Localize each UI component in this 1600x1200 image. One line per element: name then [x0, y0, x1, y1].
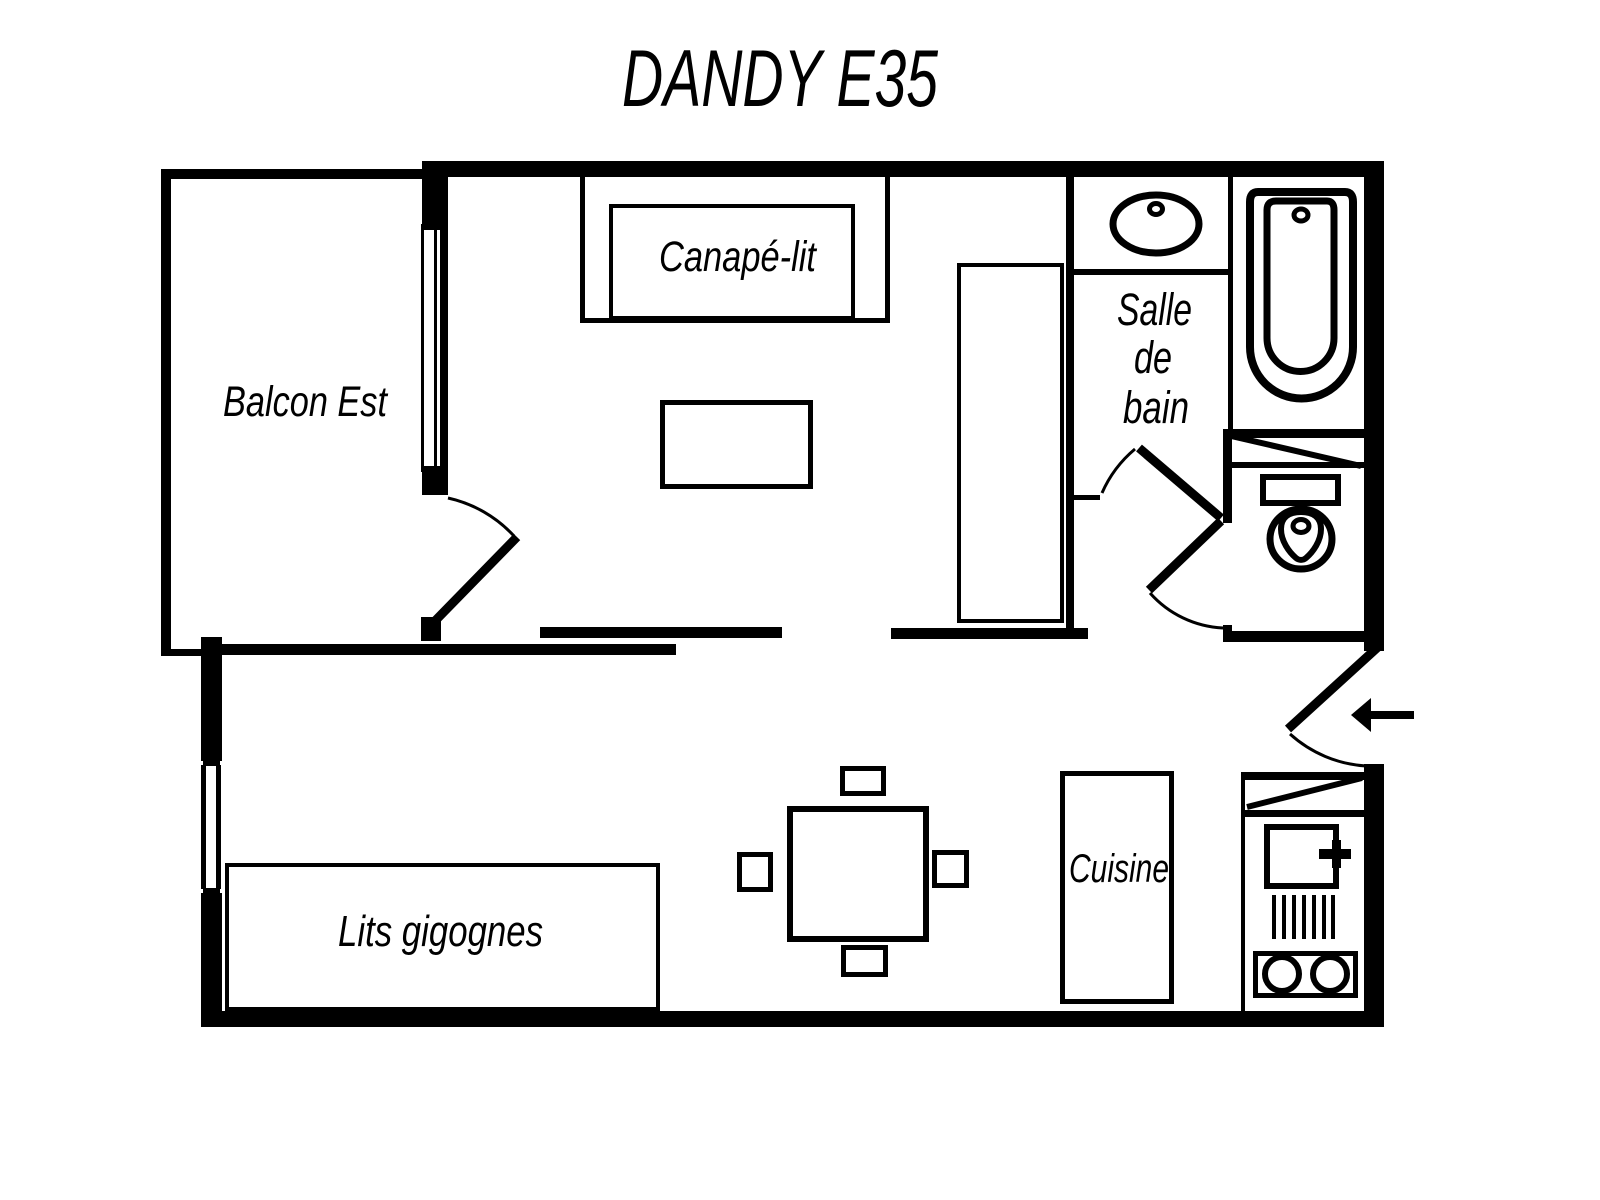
svg-text:Canapé-lit: Canapé-lit — [659, 233, 818, 281]
svg-text:de: de — [1134, 332, 1172, 383]
svg-text:Lits gigognes: Lits gigognes — [338, 907, 543, 956]
svg-text:Salle: Salle — [1117, 284, 1192, 335]
svg-text:bain: bain — [1123, 382, 1189, 433]
svg-text:Balcon Est: Balcon Est — [223, 378, 389, 426]
svg-text:Cuisine: Cuisine — [1069, 847, 1169, 891]
svg-text:DANDY E35: DANDY E35 — [622, 34, 939, 124]
